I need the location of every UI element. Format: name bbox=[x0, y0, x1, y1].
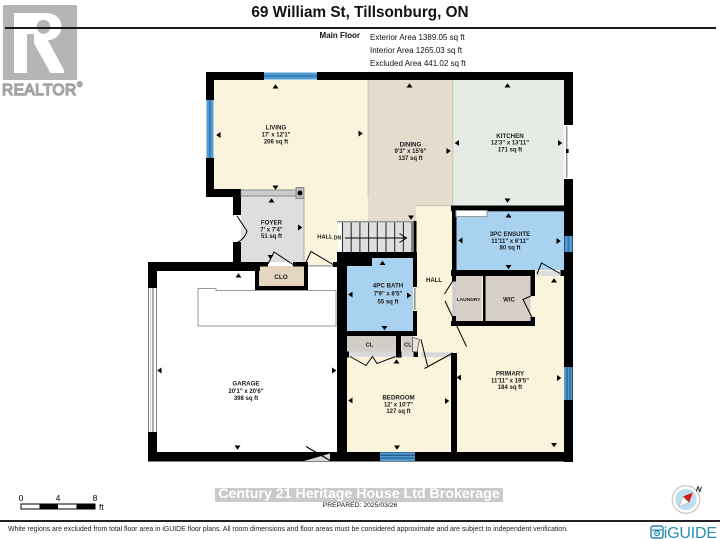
svg-text:171 sq ft: 171 sq ft bbox=[498, 148, 522, 154]
svg-text:LIVING: LIVING bbox=[266, 125, 287, 132]
svg-text:137 sq ft: 137 sq ft bbox=[398, 156, 422, 162]
svg-text:WIC: WIC bbox=[503, 298, 515, 304]
svg-text:184 sq ft: 184 sq ft bbox=[498, 385, 522, 391]
svg-text:PRIMARY: PRIMARY bbox=[496, 370, 525, 377]
svg-text:17' x 12'1": 17' x 12'1" bbox=[261, 133, 290, 139]
svg-text:12'3" x 13'11": 12'3" x 13'11" bbox=[491, 141, 529, 147]
svg-text:CLO: CLO bbox=[274, 274, 288, 281]
svg-text:51 sq ft: 51 sq ft bbox=[261, 234, 282, 240]
svg-text:11'11" x 6'11": 11'11" x 6'11" bbox=[491, 239, 529, 245]
svg-text:CL: CL bbox=[404, 343, 412, 349]
svg-text:8: 8 bbox=[93, 493, 98, 503]
svg-text:KITCHEN: KITCHEN bbox=[496, 133, 524, 140]
svg-text:BEDROOM: BEDROOM bbox=[382, 395, 414, 402]
svg-text:398 sq ft: 398 sq ft bbox=[234, 396, 258, 402]
svg-text:DINING: DINING bbox=[400, 141, 422, 148]
svg-text:HALL: HALL bbox=[426, 278, 442, 284]
svg-text:20'1" x 20'6": 20'1" x 20'6" bbox=[228, 389, 263, 395]
svg-text:iGUIDE: iGUIDE bbox=[664, 525, 717, 539]
svg-text:80 sq ft: 80 sq ft bbox=[499, 245, 520, 251]
svg-text:CL: CL bbox=[366, 343, 374, 349]
svg-text:3PC ENSUITE: 3PC ENSUITE bbox=[490, 231, 531, 238]
svg-text:N: N bbox=[695, 484, 702, 494]
svg-text:7' x 7'4": 7' x 7'4" bbox=[260, 227, 283, 233]
svg-text:55 sq ft: 55 sq ft bbox=[377, 300, 398, 306]
svg-text:9'3" x 15'6": 9'3" x 15'6" bbox=[395, 149, 427, 155]
svg-text:12' x 10'7": 12' x 10'7" bbox=[384, 403, 413, 409]
svg-text:4: 4 bbox=[56, 493, 61, 503]
svg-text:127 sq ft: 127 sq ft bbox=[386, 409, 410, 415]
svg-text:4PC BATH: 4PC BATH bbox=[373, 283, 404, 290]
svg-text:GARAGE: GARAGE bbox=[232, 381, 259, 388]
svg-text:FOYER: FOYER bbox=[261, 220, 283, 227]
svg-text:0: 0 bbox=[19, 493, 24, 503]
svg-text:LAUNDRY: LAUNDRY bbox=[457, 297, 481, 303]
svg-text:DN: DN bbox=[334, 236, 342, 242]
svg-text:7'9" x 8'5": 7'9" x 8'5" bbox=[374, 292, 403, 298]
svg-text:ft: ft bbox=[99, 502, 104, 512]
svg-text:206 sq ft: 206 sq ft bbox=[264, 140, 288, 146]
svg-text:HALL: HALL bbox=[317, 234, 333, 240]
svg-text:11'11" x 19'5": 11'11" x 19'5" bbox=[491, 378, 529, 384]
